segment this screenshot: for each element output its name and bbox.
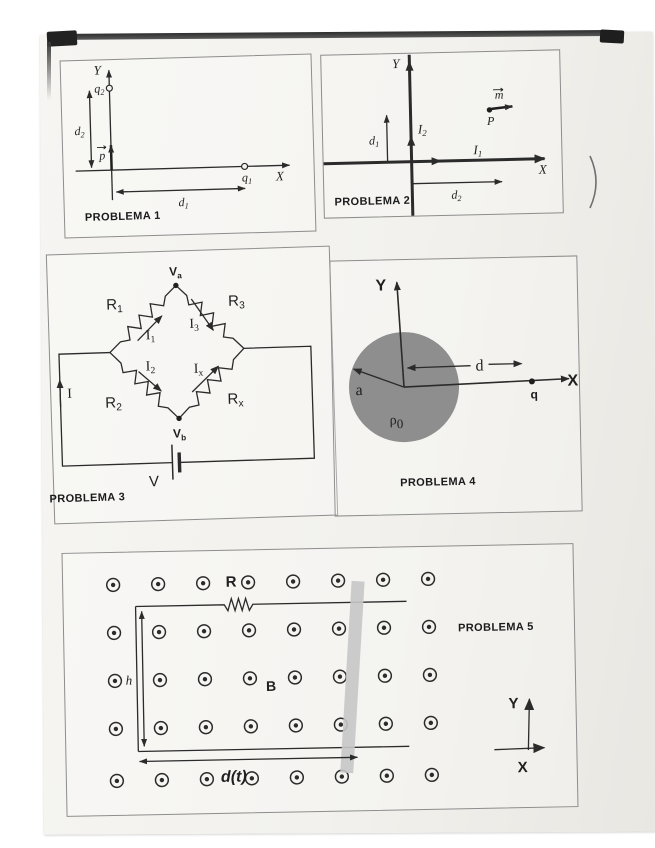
- h-label: h: [126, 673, 133, 688]
- resistor-rx: [177, 348, 246, 418]
- dt-dimension-arrow: [140, 757, 358, 761]
- wire-i2-y-axis: [409, 55, 413, 216]
- i2-direction-arrowhead: [407, 136, 415, 146]
- charge-q2-dot: [106, 85, 112, 91]
- problema3-title: PROBLEMA 3: [49, 491, 125, 505]
- d1-arrow: [387, 115, 388, 161]
- page-corner-left: [47, 30, 78, 47]
- y-axis-label: Y: [375, 277, 386, 294]
- p-dipole-vector: [111, 145, 112, 170]
- node-va-label: Va: [169, 264, 183, 280]
- m-vector-label: m: [495, 88, 504, 102]
- scanned-problem-sheet: Y X q2 q1 d2 d1 p PROBLEMA 1 Y: [0, 0, 655, 848]
- i2-direction-arrowhead-top: [405, 61, 413, 71]
- point-p-label: P: [486, 114, 495, 128]
- d1-label: d1: [178, 195, 189, 211]
- problema4-title: PROBLEMA 4: [400, 476, 476, 490]
- charge-q1-dot: [242, 163, 248, 169]
- d2-label: d2: [451, 188, 461, 204]
- d-arrow-right: [489, 364, 522, 365]
- source-current-label: I: [67, 387, 72, 402]
- charge-q-label: q: [530, 387, 538, 401]
- top-wire-right: [260, 601, 407, 604]
- d2-dimension-arrow: [89, 91, 91, 168]
- charge-q-dot: [529, 378, 535, 384]
- distance-d-label: d: [475, 357, 483, 374]
- problema4-figure: Y X a d q ρ0 PROBLEMA 4: [330, 256, 581, 515]
- frame-x-label: X: [518, 759, 528, 776]
- p-vector-label: p: [98, 148, 105, 162]
- battery-long-plate: [172, 445, 173, 480]
- d1-dimension-arrow: [116, 188, 245, 192]
- problema1-panel: Y X q2 q1 d2 d1 p PROBLEMA 1: [60, 54, 317, 239]
- x-axis-label: X: [538, 162, 548, 177]
- r3-label: R3: [228, 292, 245, 312]
- problema5-figure: R h B d(t) Y X PROBLEMA 5: [63, 544, 578, 816]
- charge-q2-label: q2: [94, 81, 105, 97]
- i1-direction-arrowhead: [432, 157, 442, 165]
- frame-x-arrow: [494, 748, 544, 750]
- i1-label: I1: [145, 328, 155, 345]
- battery-short-plate: [179, 452, 180, 472]
- battery-voltage-label: V: [149, 473, 160, 490]
- problema1-title: PROBLEMA 1: [85, 210, 161, 224]
- x-axis-label: X: [275, 168, 285, 183]
- sliding-bar: [340, 581, 364, 773]
- dt-label: d(t): [221, 768, 247, 785]
- resistor-r: [217, 598, 259, 611]
- left-wire: [136, 607, 139, 752]
- circuit-wires: [59, 346, 314, 466]
- problema3-panel: Va Vb R1 R3 R2 Rx I1 I3 I2 Ix I V PROBLE…: [46, 246, 338, 525]
- problema2-title: PROBLEMA 2: [334, 195, 410, 209]
- current-i-arrow: [60, 380, 61, 407]
- x-axis: [76, 165, 290, 171]
- problema1-figure: Y X q2 q1 d2 d1 p PROBLEMA 1: [61, 55, 316, 238]
- problema2-panel: Y X I2 I1 d1 d2 m P PROBLEMA 2: [320, 49, 564, 218]
- charge-q1-label: q1: [242, 170, 253, 186]
- radius-a-label: a: [355, 382, 362, 399]
- resistor-r1: [108, 285, 178, 352]
- i3-label: I3: [189, 317, 199, 334]
- b-field-label: B: [266, 678, 276, 694]
- node-vb-label: Vb: [173, 426, 187, 442]
- r2-label: R2: [105, 394, 122, 414]
- y-axis-label: Y: [93, 62, 102, 77]
- d2-label: d2: [74, 124, 85, 140]
- m-moment-vector: [491, 106, 512, 108]
- ix-label: Ix: [194, 362, 204, 379]
- y-axis-label: Y: [392, 56, 401, 71]
- r1-label: R1: [106, 296, 123, 316]
- top-wire-left: [136, 605, 218, 607]
- current-i2-label: I2: [417, 121, 428, 138]
- resistor-r-label: R: [226, 574, 237, 591]
- d1-label: d1: [369, 133, 379, 149]
- d2-arrow: [412, 182, 502, 184]
- h-dimension-arrow: [142, 611, 145, 746]
- bottom-wire: [138, 746, 409, 751]
- page-edge-left: [47, 42, 51, 100]
- problema5-title: PROBLEMA 5: [458, 621, 534, 634]
- problema3-circuit: Va Vb R1 R3 R2 Rx I1 I3 I2 Ix I V PROBLE…: [47, 247, 337, 524]
- x-axis-label: X: [567, 372, 578, 389]
- problema5-panel: R h B d(t) Y X PROBLEMA 5: [62, 543, 579, 817]
- current-i1-label: I1: [472, 142, 482, 159]
- frame-y-arrow: [527, 699, 530, 750]
- frame-y-label: Y: [508, 695, 518, 712]
- problema2-figure: Y X I2 I1 d1 d2 m P PROBLEMA 2: [321, 50, 563, 217]
- handwritten-paren-mark: [586, 152, 606, 212]
- rx-label: Rx: [227, 390, 244, 409]
- problema4-panel: Y X a d q ρ0 PROBLEMA 4: [329, 255, 582, 516]
- page-corner-right: [600, 29, 625, 43]
- i2-label: I2: [145, 359, 155, 376]
